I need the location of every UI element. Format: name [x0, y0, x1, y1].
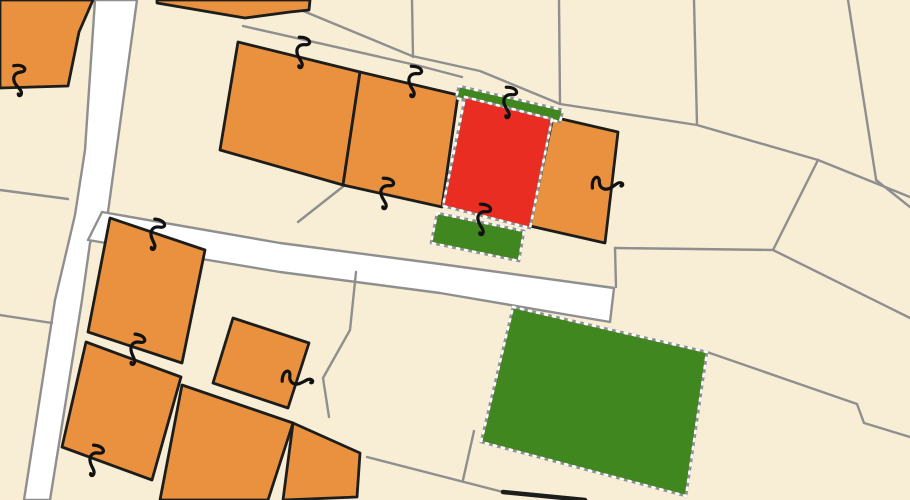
boundary-road-end — [615, 248, 616, 287]
building-row-b[interactable] — [343, 72, 458, 207]
boundary-top-v1 — [412, 0, 413, 57]
cadastral-map-canvas[interactable] — [0, 0, 910, 500]
boundary-top-v2 — [559, 0, 560, 104]
map-viewport[interactable] — [0, 0, 910, 500]
